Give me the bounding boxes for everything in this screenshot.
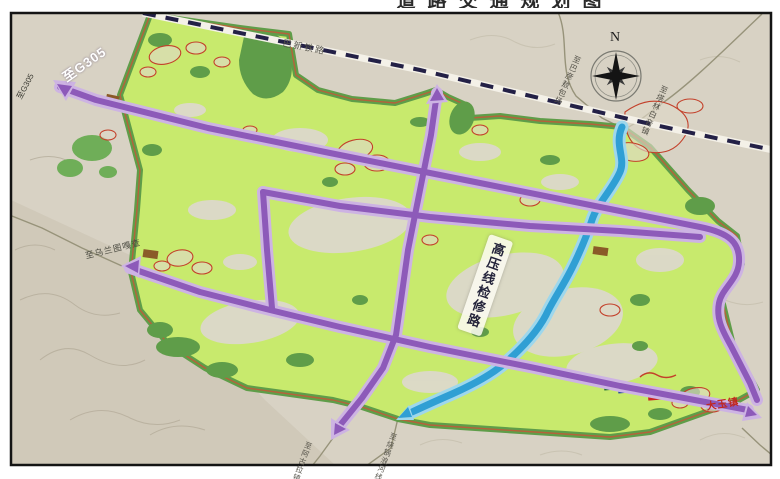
- compass-rose: [591, 51, 641, 101]
- planning-map: 道路交通规划图 至G305 至G305 巴新铁路 至巴彦敖包场 至塔林白音镇 至…: [0, 0, 780, 479]
- map-canvas: [0, 0, 780, 479]
- map-artwork: [2, 12, 778, 466]
- page-title: 道路交通规划图: [360, 0, 650, 8]
